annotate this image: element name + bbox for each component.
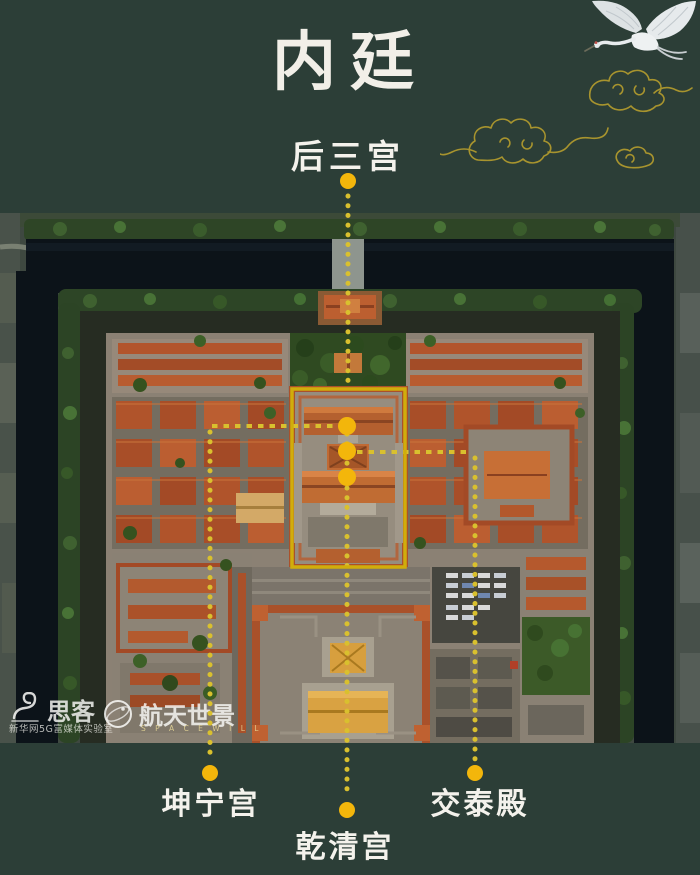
label-kun-ning-gong: 坤宁宫: [162, 779, 261, 823]
cining-compound: [112, 553, 252, 743]
label-jiao-tai-dian: 交泰殿: [431, 779, 530, 823]
infographic-root: 内廷 后三宫: [0, 0, 700, 875]
east-six-palaces: [406, 397, 588, 549]
marker-dot-qianqinggong-label: [339, 802, 355, 818]
label-qian-qing-gong: 乾清宫: [296, 822, 395, 866]
satellite-map: [0, 213, 700, 743]
satellite-map-art: [0, 213, 700, 743]
crane-clouds-illustration: [440, 0, 700, 190]
crane-icon: [585, 1, 696, 59]
cloud-pattern-icon: [440, 70, 692, 167]
page-title: 内廷: [272, 28, 428, 98]
parking-lot: [432, 567, 524, 643]
label-hou-san-gong: 后三宫: [291, 130, 405, 178]
qianqingmen-plaza: [252, 567, 430, 605]
outer-court: [252, 605, 430, 743]
imperial-garden: [290, 333, 406, 393]
rear-three-palaces: [292, 389, 405, 567]
outer-tree-band: [24, 219, 674, 241]
west-six-palaces: [112, 397, 290, 549]
north-gate: [318, 291, 382, 325]
